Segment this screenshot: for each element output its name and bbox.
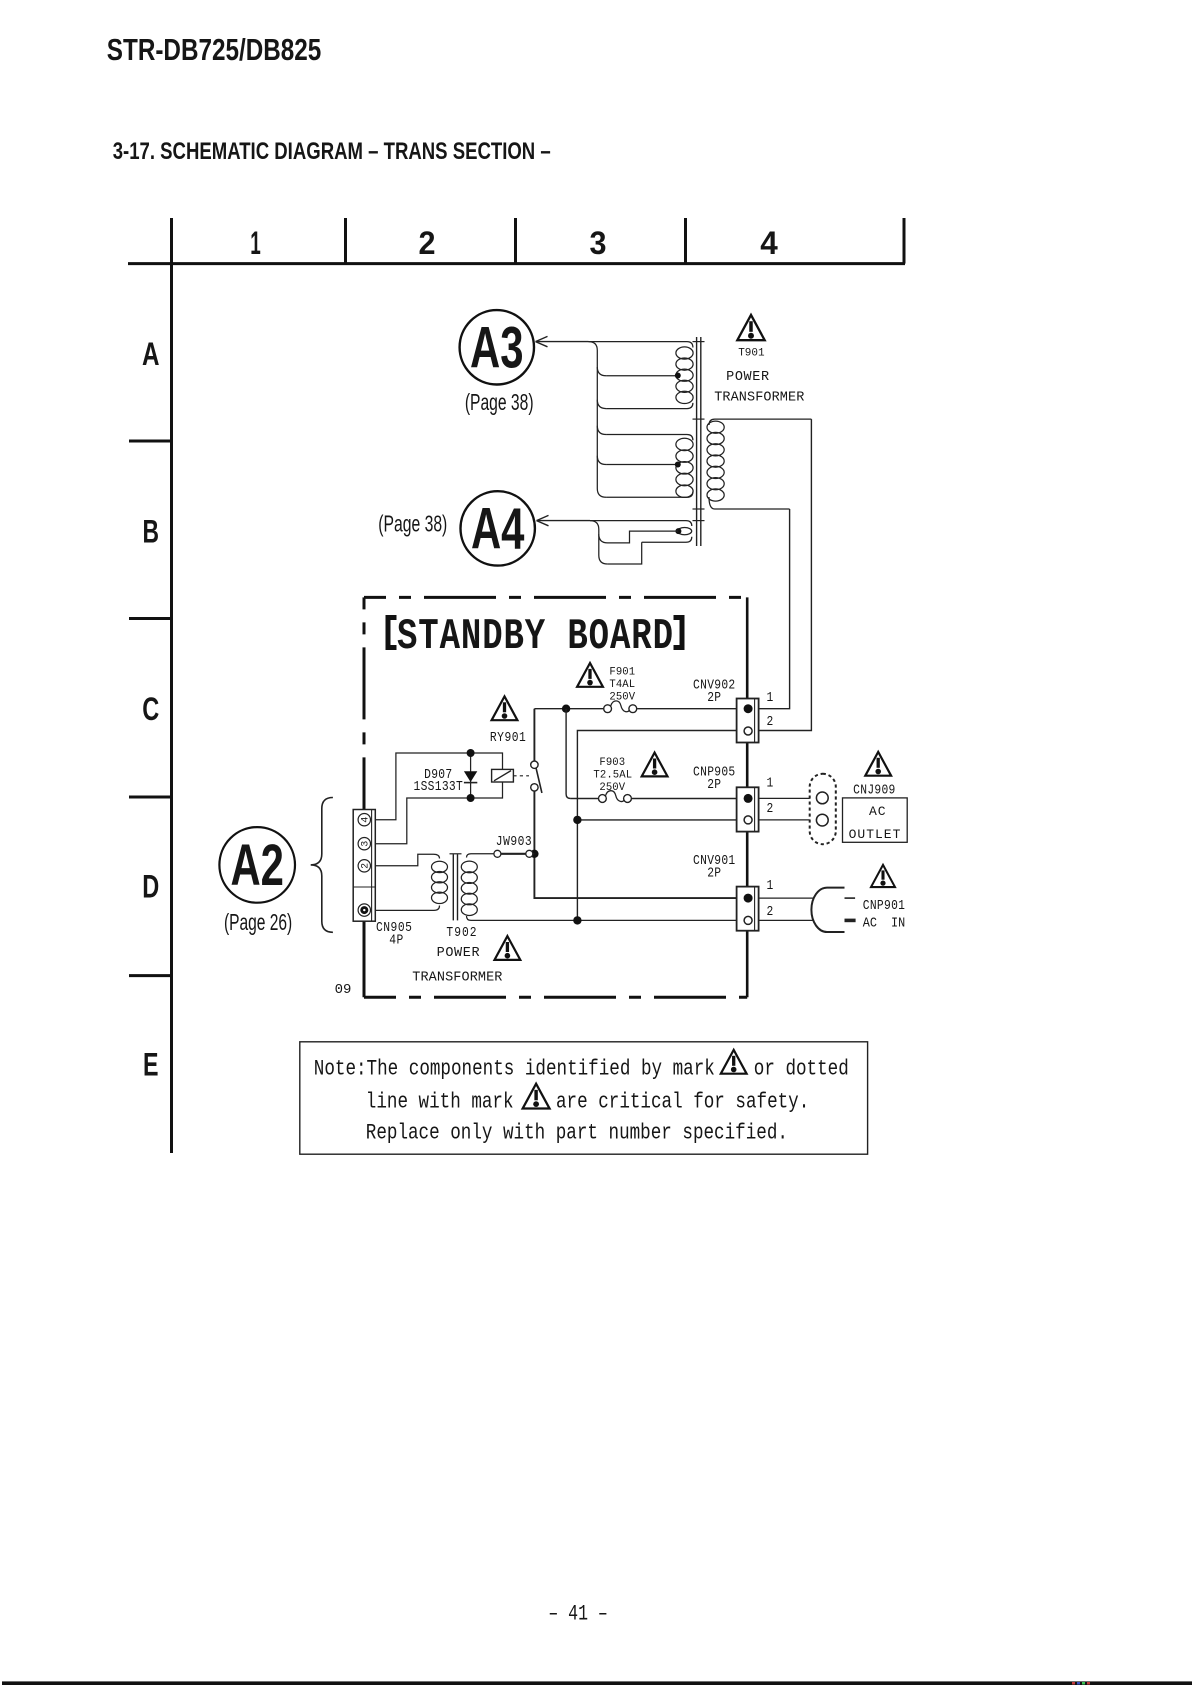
svg-text:POWER: POWER xyxy=(726,370,770,385)
svg-text:2: 2 xyxy=(767,801,774,816)
svg-text:F903: F903 xyxy=(599,757,625,769)
svg-text:AC IN: AC IN xyxy=(863,916,906,931)
svg-text:(Page 26): (Page 26) xyxy=(224,909,292,935)
svg-text:3: 3 xyxy=(361,841,372,847)
svg-text:4P: 4P xyxy=(389,933,404,948)
svg-text:(Page 38): (Page 38) xyxy=(465,389,534,415)
svg-text:POWER: POWER xyxy=(437,946,481,961)
svg-text:AC: AC xyxy=(869,804,887,819)
svg-text:09: 09 xyxy=(335,982,352,998)
svg-text:or dotted: or dotted xyxy=(754,1056,849,1081)
svg-text:Replace only with part number: Replace only with part number specified. xyxy=(366,1120,788,1145)
svg-text:A: A xyxy=(142,336,160,372)
svg-text:– 41 –: – 41 – xyxy=(548,1601,608,1626)
svg-text:1: 1 xyxy=(767,878,774,893)
svg-text:Note:The components identified: Note:The components identified by mark xyxy=(314,1056,715,1081)
svg-text:T902: T902 xyxy=(446,925,477,940)
svg-text:RY901: RY901 xyxy=(490,730,526,745)
svg-text:2: 2 xyxy=(767,904,774,919)
svg-text:line with mark: line with mark xyxy=(366,1089,514,1114)
svg-text:are critical for safety.: are critical for safety. xyxy=(556,1089,809,1114)
svg-text:1SS133T: 1SS133T xyxy=(414,779,464,794)
svg-text:E: E xyxy=(143,1047,159,1083)
svg-text:2: 2 xyxy=(419,225,436,261)
svg-text:T4AL: T4AL xyxy=(609,679,635,691)
svg-text:(Page 38): (Page 38) xyxy=(378,510,447,536)
svg-text:T2.5AL: T2.5AL xyxy=(593,770,632,782)
svg-text:TRANSFORMER: TRANSFORMER xyxy=(412,971,502,986)
svg-text:2: 2 xyxy=(767,714,774,729)
svg-text:A3: A3 xyxy=(470,315,524,380)
svg-text:CNJ909: CNJ909 xyxy=(853,783,895,798)
svg-text:A2: A2 xyxy=(230,833,284,898)
svg-text:1: 1 xyxy=(767,690,774,705)
svg-text:F901: F901 xyxy=(609,667,635,679)
svg-text:STR-DB725/DB825: STR-DB725/DB825 xyxy=(107,33,322,67)
svg-text:C: C xyxy=(142,691,159,727)
svg-text:4: 4 xyxy=(361,817,372,823)
svg-text:2P: 2P xyxy=(707,690,721,705)
svg-text:CNP901: CNP901 xyxy=(863,898,905,913)
svg-text:B: B xyxy=(143,514,160,550)
svg-text:2: 2 xyxy=(361,863,372,869)
svg-text:4: 4 xyxy=(760,225,778,261)
svg-text:2P: 2P xyxy=(707,777,721,792)
svg-text:TRANSFORMER: TRANSFORMER xyxy=(714,391,804,406)
svg-text:STANDBY BOARD: STANDBY BOARD xyxy=(397,611,673,661)
svg-text:2P: 2P xyxy=(707,866,721,881)
svg-text:D: D xyxy=(142,869,159,905)
svg-text:1: 1 xyxy=(250,225,261,261)
svg-text:OUTLET: OUTLET xyxy=(849,827,902,842)
svg-text:250V: 250V xyxy=(599,782,625,794)
svg-text:3: 3 xyxy=(590,225,607,261)
svg-text:3-17. SCHEMATIC DIAGRAM – TRAN: 3-17. SCHEMATIC DIAGRAM – TRANS SECTION … xyxy=(113,139,551,165)
svg-text:T901: T901 xyxy=(738,347,765,359)
svg-text:JW903: JW903 xyxy=(496,834,532,849)
svg-text:1: 1 xyxy=(767,776,774,791)
svg-text:A4: A4 xyxy=(471,497,525,562)
